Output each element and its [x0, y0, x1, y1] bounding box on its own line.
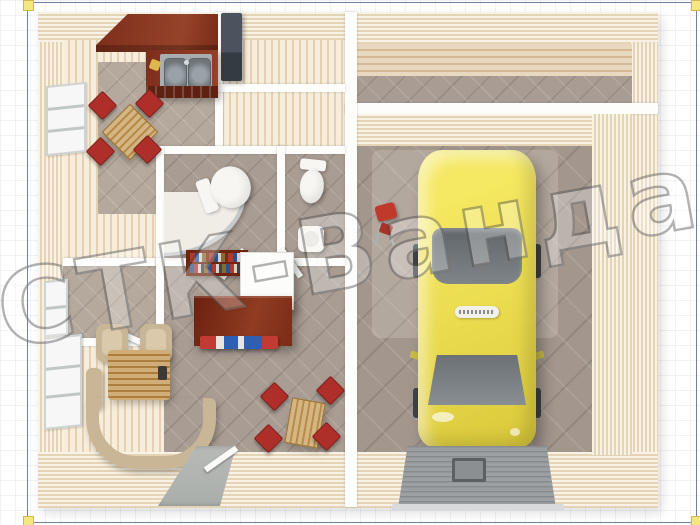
resize-handle-bottom-right[interactable] — [691, 516, 700, 525]
resize-handle-top-right[interactable] — [691, 0, 700, 11]
floor-plan-render: СТК-Ванда — [0, 0, 700, 525]
resize-handle-top-left[interactable] — [23, 0, 34, 11]
selection-frame — [27, 2, 697, 523]
resize-handle-bottom-left[interactable] — [23, 516, 34, 525]
